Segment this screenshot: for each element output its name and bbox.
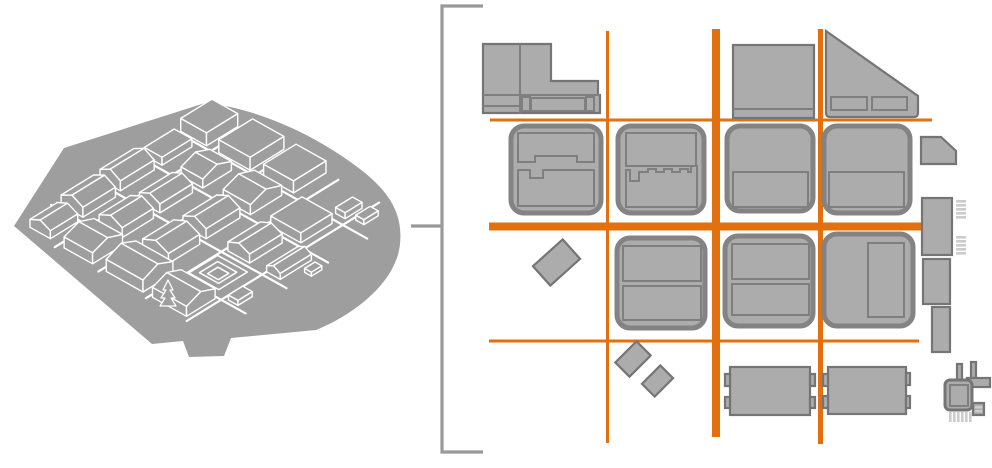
urban-design-figure <box>0 0 992 468</box>
rotated-building-south-1 <box>615 341 650 376</box>
rotated-building-south-2 <box>642 365 673 396</box>
tab <box>810 397 815 408</box>
rounded-block-r2c3 <box>727 126 813 211</box>
rounded-block-r3c2 <box>617 238 705 328</box>
crosswalk-stripes <box>949 412 972 422</box>
figure-ground-plan <box>483 29 990 444</box>
tab <box>725 397 730 408</box>
city-block-small-east-pentagon <box>921 137 956 164</box>
rotated-building-west <box>533 239 580 285</box>
tab <box>810 374 815 386</box>
east-building-1 <box>922 198 952 255</box>
east-building-3 <box>932 307 950 352</box>
antenna-bar <box>957 364 962 381</box>
tab <box>823 374 828 386</box>
callout-bracket <box>411 6 483 452</box>
tab <box>725 374 730 386</box>
stairs-icon <box>956 236 966 255</box>
tab <box>906 373 910 385</box>
isometric-massing-model <box>14 99 400 357</box>
stairs-icon <box>956 200 966 219</box>
bracket-outline <box>442 6 483 452</box>
antenna-bar <box>971 362 976 378</box>
tab <box>823 396 828 408</box>
south-building-east-body <box>828 367 906 414</box>
south-building-east <box>823 367 910 414</box>
rounded-block-r3c3 <box>725 236 813 326</box>
south-building-west-body <box>730 367 810 415</box>
rounded-block-r2c4 <box>824 126 910 213</box>
utility-box <box>973 403 984 415</box>
city-block-north <box>733 45 814 118</box>
south-building-west <box>725 367 815 415</box>
tab <box>906 396 910 408</box>
diagram-canvas <box>0 0 992 468</box>
city-block-northwest-complex <box>483 44 600 113</box>
east-building-2 <box>923 259 950 304</box>
